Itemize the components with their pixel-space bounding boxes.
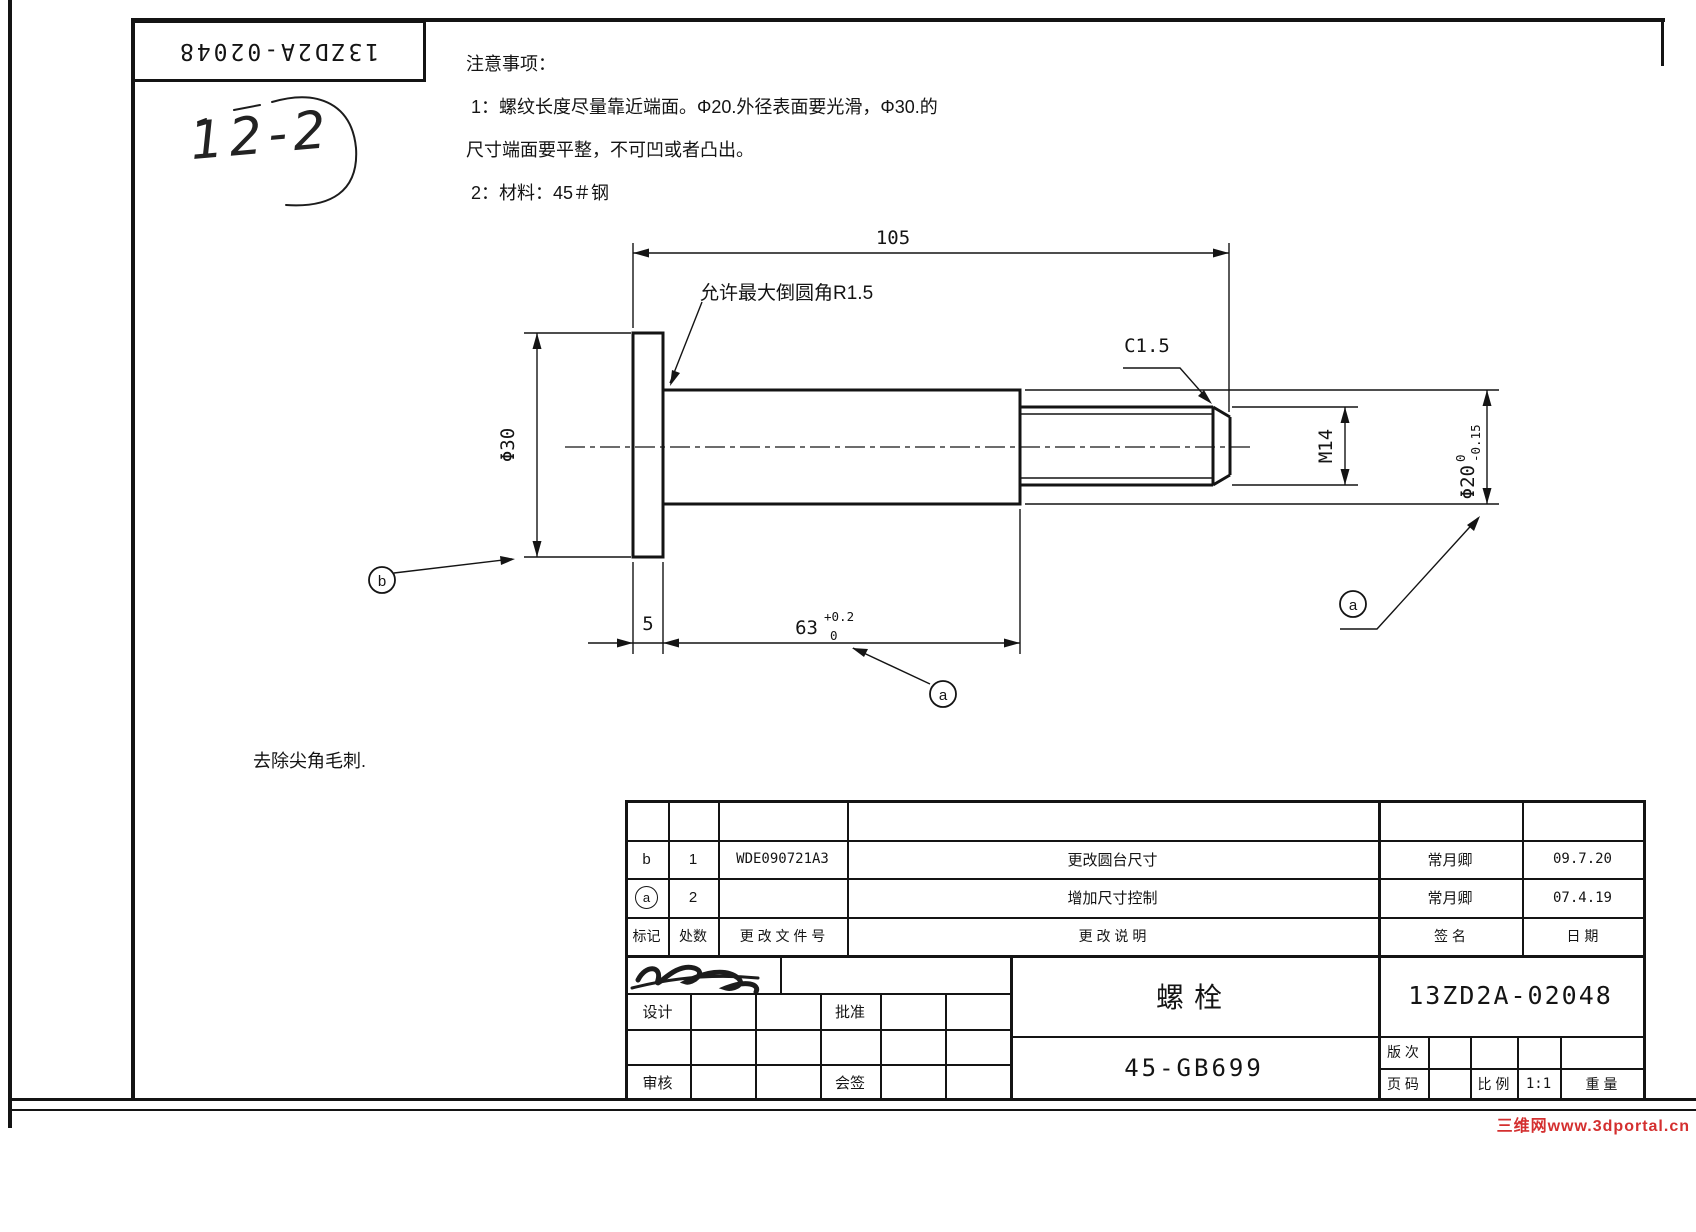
engineering-drawing-sheet: 13ZD2A-02048 12-2 注意事项： 1：螺纹长度尽量靠近端面。Φ20… <box>0 0 1696 1232</box>
part-name: 螺栓 <box>1010 955 1378 1036</box>
titleblock-line <box>1643 800 1646 1100</box>
rev-row-qty: 1 <box>668 840 718 878</box>
titleblock-line <box>755 993 757 1100</box>
thread-root-lines <box>1020 414 1213 478</box>
bolt-drawing: 105 允许最大倒圆角R1.5 C1.5 Φ30 5 63 +0.2 0 M14… <box>0 0 1696 1232</box>
titleblock-line <box>945 993 947 1100</box>
rev-row-desc: 增加尺寸控制 <box>847 878 1378 917</box>
role-check: 审核 <box>625 1064 690 1100</box>
role-design: 设计 <box>625 993 690 1029</box>
rev-row-sign: 常月卿 <box>1378 878 1522 917</box>
role-countersign: 会签 <box>820 1064 880 1100</box>
rev-header-qty: 处数 <box>668 917 718 955</box>
signature-scribble <box>632 967 758 992</box>
rev-row-doc: WDE090721A3 <box>718 840 847 878</box>
handwritten-oval <box>198 97 356 205</box>
rev-row-desc: 更改圆台尺寸 <box>847 840 1378 878</box>
dim-body-length-tol-upper: +0.2 <box>824 609 854 624</box>
rev-header-desc: 更 改 说 明 <box>847 917 1378 955</box>
rev-row-doc <box>718 878 847 917</box>
balloon-b-label: b <box>378 573 386 590</box>
field-scale-value: 1:1 <box>1517 1068 1560 1100</box>
titleblock-line <box>780 955 782 995</box>
dim-overall-length: 105 <box>876 227 910 249</box>
circled-a-mark: a <box>635 886 658 909</box>
rev-header-doc: 更 改 文 件 号 <box>718 917 847 955</box>
field-revision: 版 次 <box>1378 1036 1428 1068</box>
field-weight-label: 重 量 <box>1560 1068 1643 1100</box>
dim-thread: M14 <box>1315 429 1337 463</box>
rev-header-mark: 标记 <box>625 917 668 955</box>
chamfer-top <box>1213 407 1230 417</box>
fillet-note: 允许最大倒圆角R1.5 <box>700 282 873 304</box>
dim-chamfer: C1.5 <box>1124 335 1170 357</box>
balloon-a1-label: a <box>939 687 948 704</box>
field-page: 页 码 <box>1378 1068 1428 1100</box>
flange-profile <box>633 333 663 557</box>
titleblock-line <box>625 1029 1010 1031</box>
rev-row-sign: 常月卿 <box>1378 840 1522 878</box>
rev-row-mark: b <box>625 840 668 878</box>
balloon-a2-label: a <box>1349 597 1358 614</box>
field-scale-label: 比 例 <box>1470 1068 1517 1100</box>
rev-row-date: 07.4.19 <box>1522 878 1643 917</box>
rev-row-mark: a <box>625 878 668 917</box>
material-standard: 45-GB699 <box>1010 1036 1378 1100</box>
drawing-number: 13ZD2A-02048 <box>1378 955 1643 1036</box>
balloon-callouts: b a a <box>369 567 1366 707</box>
dim-body-length-tol-lower: 0 <box>830 628 838 643</box>
dim-flange-dia: Φ30 <box>497 428 519 462</box>
titleblock-line <box>1428 1036 1430 1100</box>
dim-body-dia-tol-upper: 0 <box>1453 454 1468 462</box>
titleblock-line <box>880 993 882 1100</box>
dimension-lines <box>524 243 1499 654</box>
role-approve: 批准 <box>820 993 880 1029</box>
rev-row-qty: 2 <box>668 878 718 917</box>
dim-flange-thickness: 5 <box>642 613 653 635</box>
rev-header-sign: 签 名 <box>1378 917 1522 955</box>
titleblock-line <box>690 993 692 1100</box>
bolt-outline <box>633 333 1230 557</box>
leader-lines <box>394 302 1478 684</box>
rev-row-date: 09.7.20 <box>1522 840 1643 878</box>
rev-header-date: 日 期 <box>1522 917 1643 955</box>
dim-body-dia: Φ20 <box>1457 465 1479 499</box>
titleblock-line <box>625 800 1645 803</box>
watermark: 三维网www.3dportal.cn <box>1370 1112 1690 1136</box>
dim-body-length: 63 <box>795 617 818 639</box>
chamfer-bottom <box>1213 475 1230 485</box>
dim-body-dia-tol-lower: -0.15 <box>1468 424 1483 462</box>
